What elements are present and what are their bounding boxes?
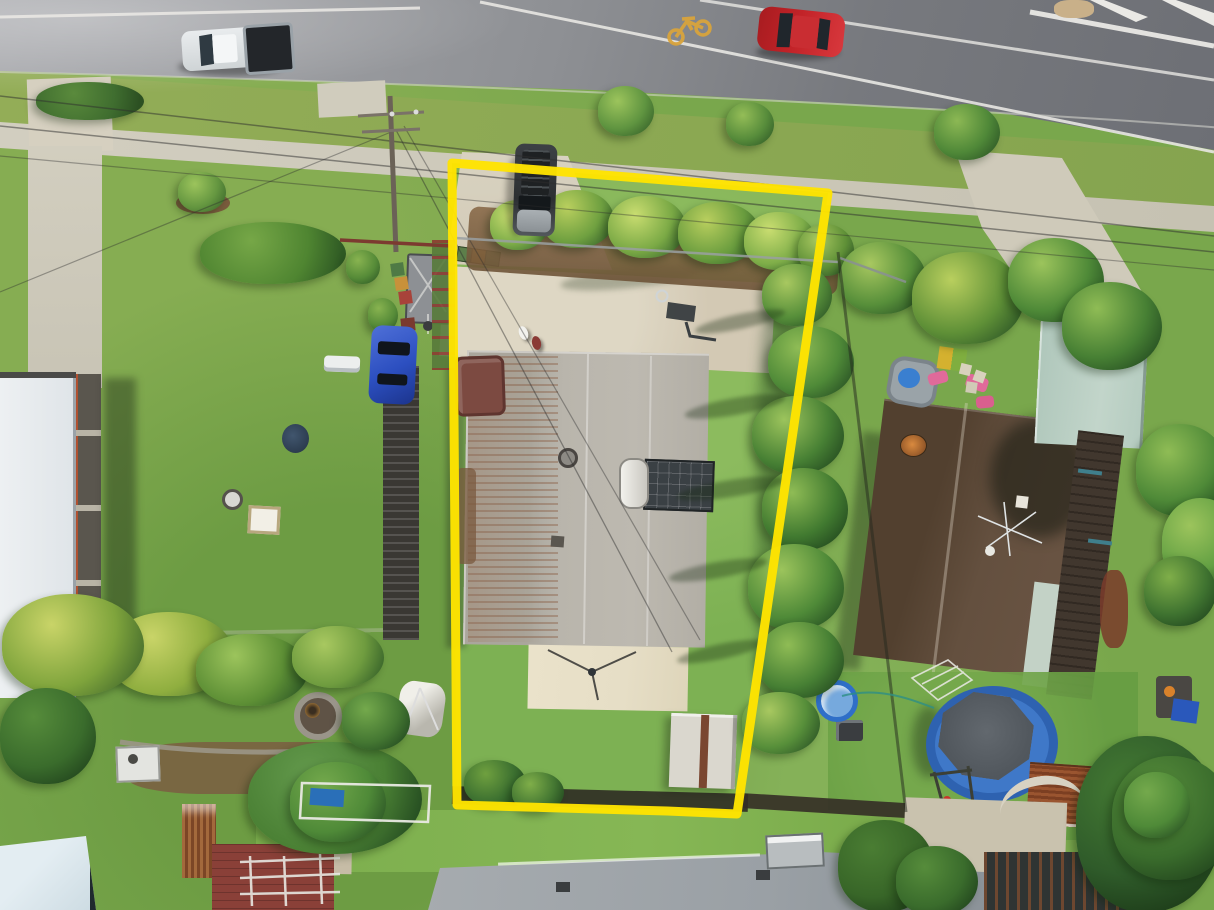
power-wire — [0, 96, 1214, 236]
power-wire — [0, 126, 1214, 252]
goal-blue-item — [309, 788, 344, 807]
service-wire — [0, 130, 396, 292]
right-front-rail — [840, 258, 906, 282]
clothesline — [912, 660, 972, 700]
overlay-lines — [0, 0, 1214, 910]
small-dish — [985, 546, 995, 556]
subject-front-rail — [456, 238, 838, 262]
garden-hose — [842, 693, 934, 708]
aerial-photo — [0, 0, 1214, 910]
property-boundary-outline — [452, 163, 828, 814]
east-side-fence — [838, 252, 906, 812]
service-wire — [396, 130, 672, 652]
power-pole — [358, 96, 424, 252]
